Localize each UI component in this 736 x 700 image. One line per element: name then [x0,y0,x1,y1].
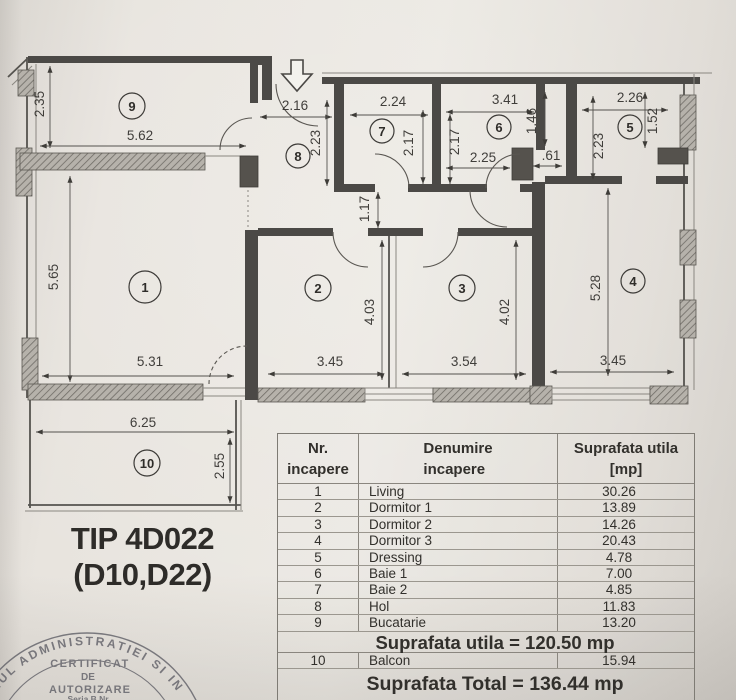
plan-title-line1: TIP 4D022 [35,521,250,557]
dim-baie1-width: 3.41 [492,92,518,107]
table-row: 3 Dormitor 2 14.26 [278,517,694,533]
row-nr: 4 [278,533,359,548]
room-number-6: 6 [495,120,502,135]
table-row: 5 Dressing 4.78 [278,550,694,566]
row-nr: 8 [278,599,359,614]
stamp-line2: DE [81,672,95,683]
dormitor1-door-arc [333,232,368,267]
room-number-3: 3 [458,281,465,296]
row-nr: 5 [278,550,359,565]
row-area: 4.78 [558,550,694,565]
room-badge-8: 8 [286,144,310,168]
dormitor2-door-arc [423,232,458,267]
room-badge-10: 10 [134,450,160,476]
kitchen-door-arc [220,118,252,150]
area-table: Nr. incapere Denumire incapere Suprafata… [277,433,695,700]
room-badge-4: 4 [621,269,645,293]
dim-balcony-height: 2.55 [212,453,227,479]
baie2-door-arc [375,154,409,188]
room-badge-1: 1 [129,271,161,303]
row-name: Dormitor 3 [359,533,558,548]
dimension-labels: 2.35 5.62 2.16 2.23 2.24 2.17 3.41 2.17 … [32,90,660,479]
total-row: Suprafata Total = 136.44 mp [278,669,694,700]
stamp-line1: CERTIFICAT [50,658,130,670]
dim-baie2-width: 2.24 [380,94,407,109]
table-row: 1 Living 30.26 [278,484,694,500]
entrance-arrow-icon [282,60,312,91]
row-nr: 7 [278,582,359,597]
dim-baie2-height: 2.17 [401,130,416,156]
table-row: 9 Bucatarie 13.20 [278,615,694,631]
dim-kitchen-height: 2.35 [32,91,47,117]
dim-dressing-niche-height: 1.52 [645,108,660,134]
row-area: 13.20 [558,615,694,630]
dim-hol-height: 2.23 [308,130,323,156]
table-row: 7 Baie 2 4.85 [278,582,694,598]
balcony-door-arc [209,346,247,384]
table-header-row: Nr. incapere Denumire incapere Suprafata… [278,434,694,484]
dim-shaft-width: .61 [542,148,561,163]
stamp-line4: Seria B Nr. [68,694,111,700]
subtotal-row: Suprafata utila = 120.50 mp [278,632,694,653]
dim-baie1-niche-height: 1.46 [524,108,539,134]
row-name: Baie 2 [359,582,558,597]
plan-title: TIP 4D022 (D10,D22) [35,521,250,593]
row-name: Hol [359,599,558,614]
header-nr-incapere: Nr. incapere [278,434,359,483]
room-number-7: 7 [378,124,385,139]
room-number-8: 8 [294,149,301,164]
room-badge-5: 5 [618,115,642,139]
dim-hall-width: 1.17 [357,196,372,222]
header-suprafata-utila: Suprafata utila [mp] [558,434,694,483]
balcony-row: 10 Balcon 15.94 [278,653,694,669]
room-number-10: 10 [140,456,154,471]
dim-kitchen-width: 5.62 [127,128,153,143]
table-row: 8 Hol 11.83 [278,599,694,615]
row-area: 15.94 [558,653,694,668]
header-denumire-incapere: Denumire incapere [359,434,558,483]
row-name: Baie 1 [359,566,558,581]
row-nr: 3 [278,517,359,532]
plan-title-line2: (D10,D22) [35,557,250,593]
table-row: 6 Baie 1 7.00 [278,566,694,582]
room-number-4: 4 [629,274,637,289]
dim-balcony-width: 6.25 [130,415,156,430]
row-name: Living [359,484,558,499]
row-area: 13.89 [558,500,694,515]
row-name: Dormitor 2 [359,517,558,532]
dim-baie1-height: 2.17 [447,129,462,155]
room-badge-9: 9 [119,93,145,119]
dim-living-width: 5.31 [137,354,163,369]
dim-dressing-width: 2.26 [617,90,643,105]
table-row: 2 Dormitor 1 13.89 [278,500,694,516]
row-name: Balcon [359,653,558,668]
dim-dorm3-height: 5.28 [588,275,603,301]
room-number-9: 9 [128,99,135,114]
row-name: Bucatarie [359,615,558,630]
authorization-stamp: RUL ADMINISTRATIEI SI IN CERTIFICAT DE A… [0,633,209,700]
dim-dorm2-width: 3.54 [451,354,478,369]
row-area: 7.00 [558,566,694,581]
row-area: 14.26 [558,517,694,532]
row-nr: 2 [278,500,359,515]
row-name: Dormitor 1 [359,500,558,515]
row-nr: 9 [278,615,359,630]
dim-dorm3-width: 3.45 [600,353,626,368]
hall-door-arc [470,190,507,227]
row-nr: 10 [278,653,359,668]
table-row: 4 Dormitor 3 20.43 [278,533,694,549]
dim-dressing-height: 2.23 [591,133,606,159]
photographed-floor-plan-page: 2.35 5.62 2.16 2.23 2.24 2.17 3.41 2.17 … [0,0,736,700]
row-area: 20.43 [558,533,694,548]
row-area: 4.85 [558,582,694,597]
dim-dorm1-width: 3.45 [317,354,343,369]
row-nr: 6 [278,566,359,581]
dim-dorm1-height: 4.03 [362,299,377,325]
row-area: 11.83 [558,599,694,614]
dim-dorm2-height: 4.02 [497,299,512,325]
room-badge-6: 6 [487,115,511,139]
room-number-2: 2 [314,281,321,296]
dim-hol-width: 2.16 [282,98,308,113]
row-nr: 1 [278,484,359,499]
dim-baie1-inner-width: 2.25 [470,150,496,165]
room-number-1: 1 [141,280,148,295]
row-name: Dressing [359,550,558,565]
row-area: 30.26 [558,484,694,499]
room-badge-3: 3 [449,275,475,301]
room-badge-2: 2 [305,275,331,301]
room-number-5: 5 [626,120,633,135]
dim-living-height: 5.65 [46,264,61,290]
room-badge-7: 7 [370,119,394,143]
